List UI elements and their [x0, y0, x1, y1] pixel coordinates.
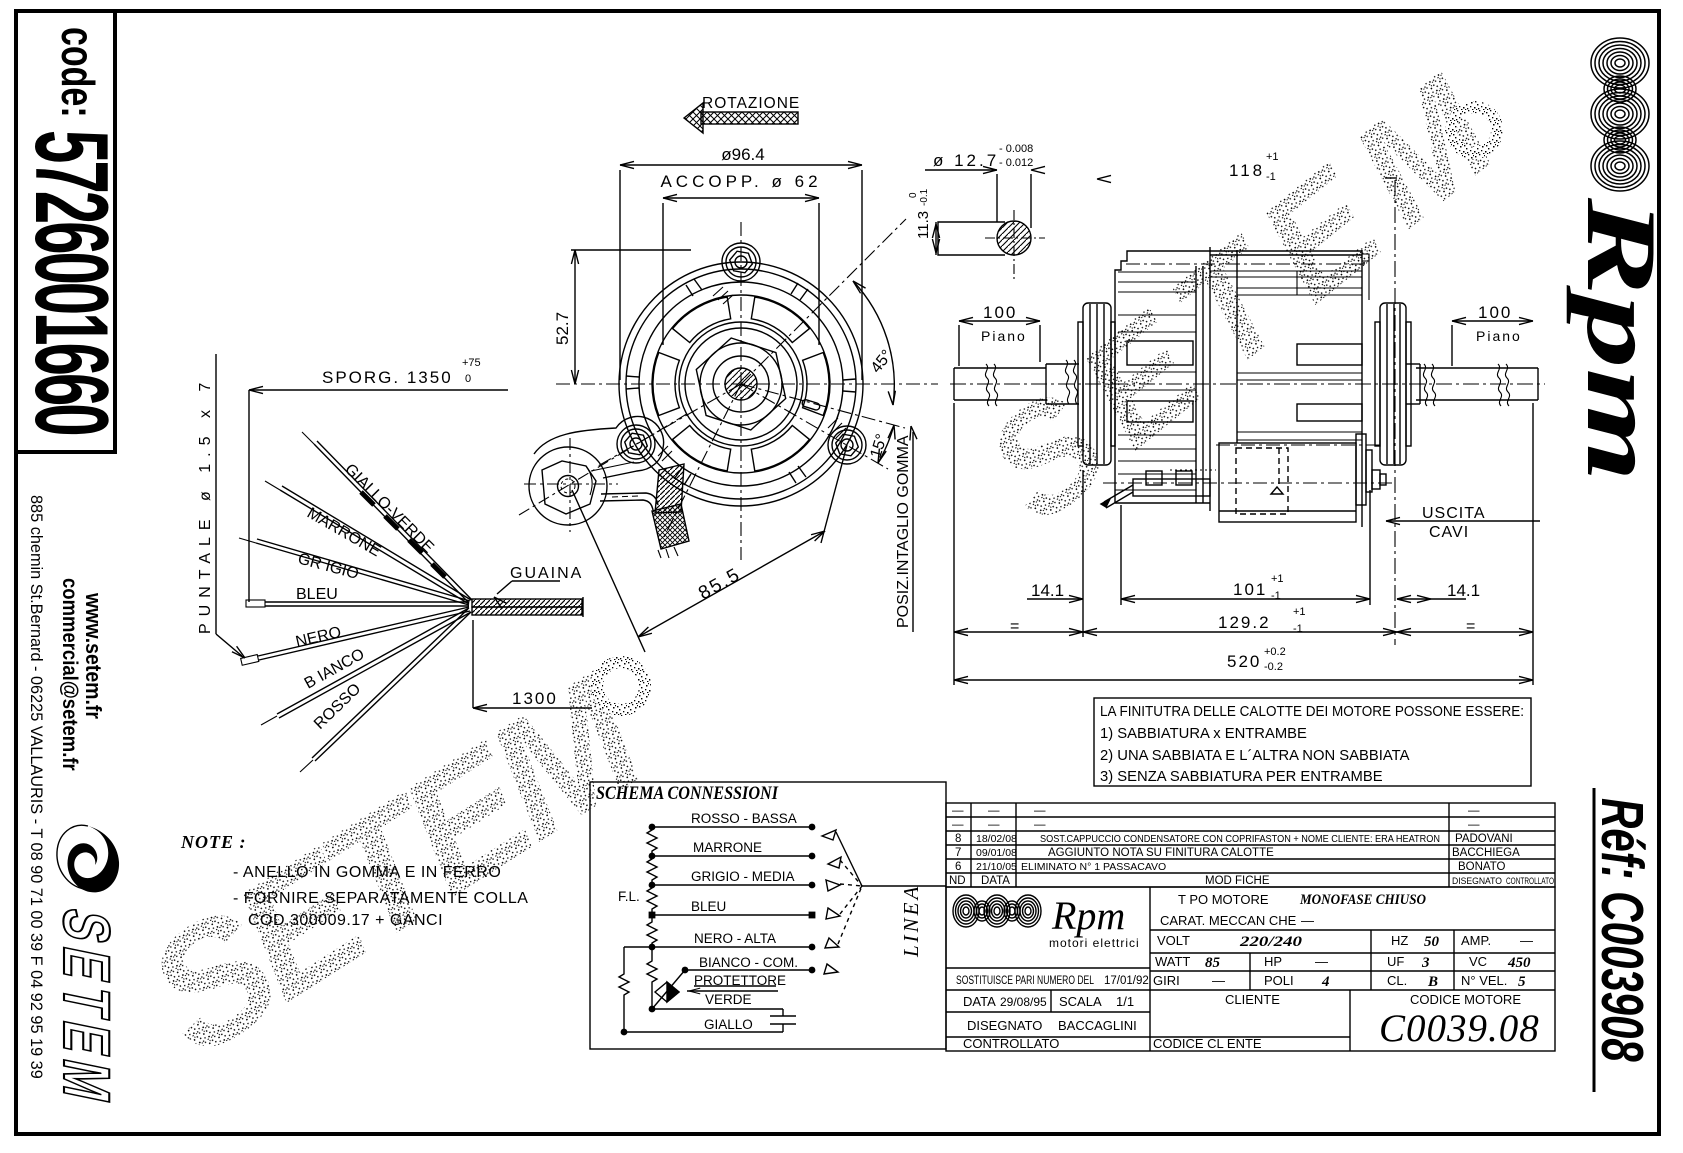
svg-text:21/10/05: 21/10/05: [976, 861, 1017, 873]
svg-text:BLEU: BLEU: [691, 899, 726, 914]
svg-text:129.2: 129.2: [1218, 613, 1271, 632]
svg-text:4: 4: [1321, 974, 1330, 990]
svg-text:17/01/92: 17/01/92: [1104, 975, 1149, 987]
svg-text:—: —: [988, 819, 1000, 831]
svg-text:520: 520: [1227, 652, 1261, 671]
svg-text:C0039.08: C0039.08: [1379, 1007, 1540, 1050]
svg-text:HP: HP: [1264, 954, 1282, 969]
svg-text:CONTROLLATO: CONTROLLATO: [1506, 876, 1554, 886]
svg-text:- FORNIRE SEPARATAMENTE COLLA: - FORNIRE SEPARATAMENTE COLLA: [233, 890, 528, 907]
svg-text:MONOFASE CHIUSO: MONOFASE CHIUSO: [1299, 892, 1426, 908]
svg-text:85: 85: [1205, 955, 1221, 971]
svg-text:Rpm: Rpm: [1566, 197, 1677, 482]
svg-text:=: =: [1010, 618, 1019, 635]
svg-text:29/08/95: 29/08/95: [1000, 995, 1047, 1009]
svg-text:—: —: [952, 819, 964, 831]
svg-text:1/1: 1/1: [1116, 994, 1134, 1009]
svg-text:DATA: DATA: [963, 994, 996, 1009]
svg-text:8: 8: [955, 833, 961, 845]
svg-text:B: B: [1427, 974, 1438, 990]
svg-text:PUNTALE ø 1.5 x 7: PUNTALE ø 1.5 x 7: [197, 376, 214, 634]
svg-text:3) SENZA SABBIATURA PER ENTRAM: 3) SENZA SABBIATURA PER ENTRAMBE: [1100, 769, 1383, 785]
svg-text:HZ: HZ: [1391, 933, 1408, 948]
svg-text:F.L.: F.L.: [618, 889, 640, 904]
svg-text:=: =: [1466, 618, 1475, 635]
svg-text:ø96.4: ø96.4: [721, 145, 764, 164]
svg-text:18/02/08: 18/02/08: [976, 833, 1017, 845]
svg-text:7: 7: [955, 847, 961, 859]
svg-text:5726001660: 5726001660: [13, 130, 129, 434]
svg-text:220/240: 220/240: [1239, 934, 1303, 950]
svg-text:0: 0: [908, 192, 919, 198]
svg-text:Réf: C003908: Réf: C003908: [1589, 798, 1656, 1062]
svg-text:VERDE: VERDE: [705, 992, 752, 1007]
svg-text:14.1: 14.1: [1031, 581, 1064, 600]
svg-text:UF: UF: [1387, 954, 1404, 969]
svg-text:ø 12.7: ø 12.7: [933, 151, 999, 170]
svg-text:BLEU: BLEU: [296, 586, 338, 603]
svg-text:ACCOPP. ø 62: ACCOPP. ø 62: [660, 172, 821, 191]
svg-text:DATA: DATA: [981, 875, 1010, 887]
svg-text:-1: -1: [1293, 623, 1303, 635]
svg-text:+1: +1: [1271, 573, 1284, 585]
svg-text:100: 100: [983, 303, 1017, 322]
svg-text:POSIZ.INTAGLIO GOMMA: POSIZ.INTAGLIO GOMMA: [895, 435, 912, 628]
svg-text:www.setem.fr: www.setem.fr: [81, 592, 106, 719]
svg-text:AGGIUNTO NOTA SU FINITURA CALO: AGGIUNTO NOTA SU FINITURA CALOTTE: [1048, 847, 1274, 859]
svg-text:6: 6: [955, 861, 961, 873]
svg-text:ROSSO - BASSA: ROSSO - BASSA: [691, 811, 797, 826]
svg-text:NOTE :: NOTE :: [180, 832, 247, 852]
svg-text:CL.: CL.: [1387, 973, 1407, 988]
svg-text:CAVI: CAVI: [1429, 524, 1469, 541]
svg-text:GRIGIO - MEDIA: GRIGIO - MEDIA: [691, 869, 795, 884]
svg-text:WATT: WATT: [1155, 954, 1190, 969]
svg-text:VC: VC: [1469, 954, 1487, 969]
svg-text:DISEGNATO: DISEGNATO: [967, 1018, 1042, 1033]
svg-text:ROTAZIONE: ROTAZIONE: [702, 95, 800, 112]
svg-text:CONTROLLATO: CONTROLLATO: [963, 1036, 1059, 1051]
svg-text:BACCHIEGA: BACCHIEGA: [1452, 847, 1520, 859]
svg-text:T PO MOTORE: T PO MOTORE: [1178, 892, 1269, 907]
svg-text:—: —: [1315, 954, 1328, 969]
svg-text:450: 450: [1507, 955, 1531, 971]
svg-text:commercial@setem.fr: commercial@setem.fr: [58, 578, 81, 771]
svg-text:code:: code:: [52, 27, 104, 118]
svg-text:-0.1: -0.1: [919, 188, 930, 206]
svg-text:GIALLO: GIALLO: [704, 1017, 753, 1032]
svg-text:- 0.008: - 0.008: [999, 143, 1033, 155]
svg-text:CODICE CL ENTE: CODICE CL ENTE: [1153, 1036, 1262, 1051]
svg-text:5: 5: [1518, 974, 1526, 990]
svg-text:101: 101: [1233, 580, 1267, 599]
svg-text:—: —: [952, 805, 964, 817]
svg-text:-0.2: -0.2: [1264, 661, 1283, 673]
svg-text:VOLT: VOLT: [1157, 933, 1190, 948]
svg-text:ND: ND: [949, 875, 966, 887]
svg-text:SOST.CAPPUCCIO CONDENSATORE CO: SOST.CAPPUCCIO CONDENSATORE CON COPRIFAS…: [1040, 833, 1440, 845]
svg-text:- 0.012: - 0.012: [999, 157, 1033, 169]
svg-text:100: 100: [1478, 303, 1512, 322]
svg-text:0: 0: [465, 373, 471, 385]
svg-text:ELIMINATO N° 1 PASSACAVO: ELIMINATO N° 1 PASSACAVO: [1021, 861, 1166, 873]
svg-text:1300: 1300: [512, 689, 558, 708]
svg-text:—: —: [1468, 819, 1480, 831]
svg-text:LA FINITUTRA DELLE CALOTTE DEI: LA FINITUTRA DELLE CALOTTE DEI MOTORE PO…: [1100, 704, 1524, 720]
svg-text:SETEM: SETEM: [49, 903, 122, 1115]
svg-text:CARAT. MECCAN CHE: CARAT. MECCAN CHE: [1160, 913, 1297, 928]
svg-text:DISEGNATO: DISEGNATO: [1452, 876, 1502, 886]
svg-text:2) UNA SABBIATA E L´ALTRA NON: 2) UNA SABBIATA E L´ALTRA NON SABBIATA: [1100, 748, 1410, 764]
svg-text:—: —: [1212, 973, 1225, 988]
svg-text:+75: +75: [462, 357, 481, 369]
svg-text:50: 50: [1424, 934, 1440, 950]
svg-text:Rpm: Rpm: [1051, 893, 1125, 938]
svg-text:PADOVANI: PADOVANI: [1455, 833, 1513, 845]
svg-text:NERO - ALTA: NERO - ALTA: [694, 931, 776, 946]
svg-text:BACCAGLINI: BACCAGLINI: [1058, 1018, 1137, 1033]
svg-text:USCITA: USCITA: [1422, 505, 1485, 522]
svg-text:Piano: Piano: [981, 328, 1027, 344]
svg-text:GUAINA: GUAINA: [510, 565, 583, 582]
svg-text:14.1: 14.1: [1447, 581, 1480, 600]
svg-text:—: —: [1520, 933, 1533, 948]
svg-text:Piano: Piano: [1476, 328, 1522, 344]
svg-text:—: —: [1034, 819, 1046, 831]
svg-text:AMP.: AMP.: [1461, 933, 1491, 948]
svg-text:- ANELLO IN GOMMA E IN FERRO: - ANELLO IN GOMMA E IN FERRO: [233, 864, 501, 881]
svg-text:SCALA: SCALA: [1059, 994, 1102, 1009]
svg-text:—: —: [988, 805, 1000, 817]
svg-text:—: —: [1034, 805, 1046, 817]
svg-text:motori elettrici: motori elettrici: [1049, 936, 1140, 950]
svg-text:885 chemin St.Bernard - 0622: 885 chemin St.Bernard - 06225 VALLAURIS …: [27, 495, 45, 1079]
svg-text:-1: -1: [1266, 171, 1276, 183]
svg-text:MARRONE: MARRONE: [693, 840, 762, 855]
svg-text:118: 118: [1229, 161, 1265, 180]
svg-text:LINEA: LINEA: [899, 884, 923, 958]
svg-text:—: —: [1301, 913, 1314, 928]
svg-text:COD.300009.17 + GANCI: COD.300009.17 + GANCI: [248, 912, 443, 929]
svg-text:SCHEMA CONNESSIONI: SCHEMA CONNESSIONI: [596, 783, 779, 804]
svg-text:1) SABBIATURA x ENTRAMBE: 1) SABBIATURA x ENTRAMBE: [1100, 726, 1307, 742]
svg-text:3: 3: [1421, 955, 1430, 971]
svg-text:POLI: POLI: [1264, 973, 1294, 988]
svg-text:BONATO: BONATO: [1458, 861, 1506, 873]
svg-text:CLIENTE: CLIENTE: [1225, 992, 1280, 1007]
svg-text:GIRI: GIRI: [1153, 973, 1180, 988]
svg-text:N° VEL.: N° VEL.: [1461, 973, 1507, 988]
svg-text:+0.2: +0.2: [1264, 646, 1286, 658]
svg-text:CODICE MOTORE: CODICE MOTORE: [1410, 992, 1521, 1007]
svg-text:MOD FICHE: MOD FICHE: [1205, 875, 1270, 887]
svg-text:+1: +1: [1266, 151, 1279, 163]
svg-text:SOSTITUISCE PARI NUMERO DEL: SOSTITUISCE PARI NUMERO DEL: [956, 975, 1094, 987]
svg-text:BIANCO - COM.: BIANCO - COM.: [699, 955, 798, 970]
svg-text:-1: -1: [1271, 590, 1281, 602]
svg-text:09/01/08: 09/01/08: [976, 847, 1017, 859]
svg-text:52.7: 52.7: [553, 312, 572, 345]
svg-text:+1: +1: [1293, 606, 1306, 618]
svg-text:11.3: 11.3: [915, 211, 932, 239]
svg-text:SPORG. 1350: SPORG. 1350: [322, 368, 453, 387]
svg-text:—: —: [1468, 805, 1480, 817]
